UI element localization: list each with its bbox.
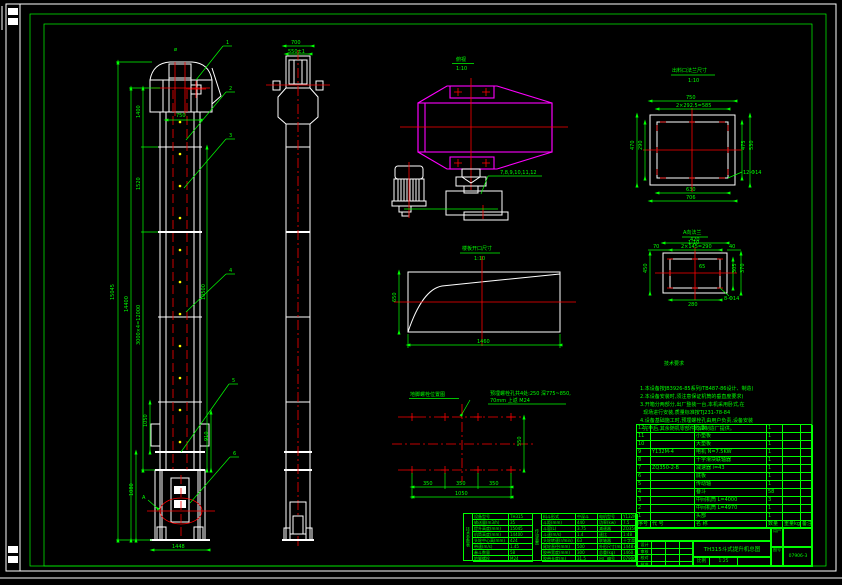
bom-row-10-cell-1 — [651, 505, 695, 513]
opening-scale: 1:10 — [474, 256, 485, 262]
bom-row-7-cell-2: 传动轴 — [695, 481, 767, 489]
bom-row-8-cell-3: 58 — [767, 489, 783, 497]
bom-row-9-cell-3: 3 — [767, 497, 783, 505]
head-detail-scale: 1:10 — [456, 66, 467, 72]
anchor-d1: 350 — [423, 481, 433, 487]
bom-row-4-cell-1 — [651, 457, 695, 465]
param-v2-7: 31.5 — [576, 556, 598, 562]
title-block: 设计审核校对批准 TH315斗式提升机总图 比例 1:25 用户 图号 0790… — [636, 527, 812, 566]
balloon-3: 3 — [229, 133, 232, 139]
revision-cell — [637, 528, 771, 541]
bom-row-11-cell-5 — [801, 513, 813, 521]
anchor-height: 550 — [517, 436, 523, 446]
bom-row-2-cell-3: 1 — [767, 441, 783, 449]
opening-view: 楼板开口尺寸 1:10 1460 650 — [392, 245, 576, 348]
flange-a-center: 65 — [699, 264, 705, 270]
bom-row-3-cell-1: Y132M-4 — [651, 449, 695, 457]
anchor-bolts — [408, 413, 515, 474]
sign-label-3: 批准 — [638, 562, 652, 568]
bom-row-0-cell-0: 12 — [637, 425, 651, 433]
bom-row-6-cell-0: 6 — [637, 473, 651, 481]
flange-a-r2: 370 — [740, 263, 746, 273]
client-label: 用户 — [771, 528, 783, 547]
bom-row-11-cell-1 — [651, 513, 695, 521]
flange-a-top: 420 — [690, 237, 700, 243]
bom-row-9-cell-5 — [801, 497, 813, 505]
dim-side-inner: 550±1 — [288, 49, 305, 55]
side-view: 700 550±1 — [266, 40, 330, 548]
dim-boot-lower: 1080 — [129, 483, 135, 496]
dim-boot-upper: 1050 — [143, 414, 149, 427]
bom-row-7-cell-5 — [801, 481, 813, 489]
bom-row-2-cell-0: 10 — [637, 441, 651, 449]
bom-row-3-cell-0: 9 — [637, 449, 651, 457]
tech-note-line-2: 2.本设备安装时,须注意保证机筒的垂直度要求) — [640, 393, 810, 401]
flange-b-leader: 12-Φ14 — [743, 170, 761, 176]
flange-a-title: A向法兰 — [683, 229, 701, 236]
bom-row-8-cell-5 — [801, 489, 813, 497]
bom-row-4-cell-4 — [783, 457, 801, 465]
param-group-2: 料斗形式中深斗斗距(mm)440斗容(L)3.75斗速(m/s)1.4头轮转速(… — [542, 514, 598, 560]
param-l2-7: 胶带长度(m) — [542, 556, 576, 562]
bom-row-5-cell-1: ZQ350-2-B — [651, 465, 695, 473]
tech-note-line-4: 现场进行安装,质量标准按TJ231-78-84 — [640, 409, 810, 417]
drawing-no-label: 图号 — [771, 547, 783, 567]
anchor-view: 地脚螺栓位置图 预埋螺栓孔共4处:250 深775~850, 70mm 上返 M… — [392, 390, 571, 499]
bom-row-3-cell-5 — [801, 449, 813, 457]
bom-row-0-cell-2: 压板 — [695, 425, 767, 433]
anchor-total: 1050 — [455, 491, 468, 497]
dim-boot-right: 910 — [204, 431, 210, 441]
drawing-no-value: 07906-3 — [783, 547, 813, 567]
tech-notes-title: 技术要求 — [640, 360, 810, 369]
param-side-label: 技术参数表 — [464, 514, 473, 560]
sign-cell-3-1 — [652, 562, 666, 568]
bom-row-11-cell-2: 头部 — [695, 513, 767, 521]
anchor-d2: 350 — [456, 481, 466, 487]
balloon-6: 6 — [233, 451, 236, 457]
bom-row-7-cell-1 — [651, 481, 695, 489]
flange-b-top: 750 — [686, 95, 696, 101]
bom-row-3-cell-4 — [783, 449, 801, 457]
bom-row-2-cell-4 — [783, 441, 801, 449]
cad-sheet: 1 2 3 4 5 6 ø A 15045 14400 1400 152 — [0, 0, 842, 585]
dim-right-run: 10500 — [201, 284, 207, 300]
anchor-title: 地脚螺栓位置图 — [410, 391, 445, 398]
flange-b-scale: 1:10 — [688, 78, 699, 84]
bom-row-5-cell-3: 1 — [767, 465, 783, 473]
sign-cell-3-2 — [666, 562, 680, 568]
balloon-1: 1 — [226, 40, 229, 46]
bucket-dots — [179, 121, 182, 444]
flange-a-r1: 305 — [732, 263, 738, 273]
bom-row-4-cell-2: 十字滑块联轴器 — [695, 457, 767, 465]
client-value — [783, 528, 813, 547]
scale-value: 1:25 — [710, 558, 738, 566]
bom-row-4-cell-3: 1 — [767, 457, 783, 465]
bom-row-10-cell-2: 中间机筒 L=4970 — [695, 505, 767, 513]
flange-b-r1: 475 — [741, 140, 747, 150]
dia-mark: ø — [174, 47, 177, 53]
anchor-note2: 70mm 上返 M24 — [490, 397, 530, 404]
bom-row-3-cell-3: 1 — [767, 449, 783, 457]
flange-b-b1: 630 — [686, 187, 696, 193]
param-table: 技术参数表 设备型号TH315输送量(m3/h)35提升高度(mm)15045机… — [463, 513, 636, 561]
bom-row-2-cell-5 — [801, 441, 813, 449]
flange-a-view: A向法兰 1:10 420 70 2×145=290 40 450 305 37… — [643, 229, 746, 308]
bom-row-6-cell-4 — [783, 473, 801, 481]
bom-table: 12压板111小垫板110大垫板19Y132M-4电机 N=7.5KW18十字滑… — [636, 424, 812, 528]
flange-a-70: 70 — [653, 244, 659, 250]
bom-row-4-cell-5 — [801, 457, 813, 465]
bom-row-6-cell-5 — [801, 473, 813, 481]
bom-row-4-cell-0: 8 — [637, 457, 651, 465]
head-detail-leader: 7,8,9,10,11,12 — [500, 170, 537, 176]
flange-a-mid: 2×145=290 — [681, 244, 712, 250]
drawing-title: TH315斗式提升机总图 — [693, 541, 771, 557]
head-detail-title: 俯视 — [456, 56, 466, 63]
front-view — [147, 62, 221, 540]
bom-row-10-cell-0: 2 — [637, 505, 651, 513]
flange-b-b2: 706 — [686, 195, 696, 201]
bom-row-8-cell-4 — [783, 489, 801, 497]
dim-mid-height: 14400 — [124, 296, 130, 312]
bom-row-11-cell-0: 1 — [637, 513, 651, 521]
flange-a-40: 40 — [729, 244, 735, 250]
sign-cell-3-3 — [680, 562, 693, 568]
tech-note-line-3: 3.开箱分两部分,出厂整装一台,本机采用卧式,在 — [640, 401, 810, 409]
bom-row-10-cell-5 — [801, 505, 813, 513]
bom-row-0-cell-1 — [651, 425, 695, 433]
bom-row-9-cell-2: 中间机筒 L=4000 — [695, 497, 767, 505]
bom-row-7-cell-4 — [783, 481, 801, 489]
bom-row-9-cell-0: 3 — [637, 497, 651, 505]
bom-row-9-cell-4 — [783, 497, 801, 505]
flange-a-bottom: 280 — [688, 302, 698, 308]
dim-second-section: 1520 — [136, 177, 142, 190]
param-l1-7: 地脚螺栓 — [473, 556, 509, 562]
param-group-3: 电机型号Y132M-4功率(kw)7.5减速器ZQ350-2-B速比1:48联轴… — [598, 514, 638, 560]
dim-sections: 3000×4=12000 — [136, 305, 142, 345]
anchor-note1: 预埋螺栓孔共4处:250 深775~850, — [490, 390, 571, 397]
bom-row-6-cell-1 — [651, 473, 695, 481]
param-group-1: 设备型号TH315输送量(m3/h)35提升高度(mm)15045机筒高度(mm… — [473, 514, 533, 560]
bom-row-8-cell-2: 畚斗 — [695, 489, 767, 497]
bom-row-10-cell-4 — [783, 505, 801, 513]
bom-row-1-cell-5 — [801, 433, 813, 441]
flange-b-title: 出料口法兰尺寸 — [672, 67, 707, 74]
bom-row-1-cell-3: 1 — [767, 433, 783, 441]
bom-row-5-cell-5 — [801, 465, 813, 473]
flange-b-view: 出料口法兰尺寸 1:10 750 2×292.5=585 470 290 475… — [630, 67, 761, 201]
bom-row-8-cell-0: 4 — [637, 489, 651, 497]
anchor-d3: 350 — [489, 481, 499, 487]
bom-row-10-cell-3: 1 — [767, 505, 783, 513]
bom-row-6-cell-2: 底板 — [695, 473, 767, 481]
bom-row-9-cell-1 — [651, 497, 695, 505]
flange-b-l1: 470 — [630, 140, 636, 150]
scale-row: 比例 1:25 — [693, 557, 771, 567]
bom-row-2-cell-2: 大垫板 — [695, 441, 767, 449]
bom-row-2-cell-1 — [651, 441, 695, 449]
balloon-5: 5 — [232, 378, 235, 384]
param-side-label-2: 传动装置 — [533, 514, 542, 560]
flange-b-r2: 530 — [749, 140, 755, 150]
tech-note-line-1: 1.本设备按JB3926-85系列/TB487-86设计、制造) — [640, 385, 810, 393]
opening-title: 楼板开口尺寸 — [462, 245, 492, 252]
bom-row-5-cell-0: 7 — [637, 465, 651, 473]
flange-a-left: 450 — [643, 263, 649, 273]
flange-b-top2: 2×292.5=585 — [676, 103, 711, 109]
head-detail-view: 俯视 1:10 — [392, 56, 568, 220]
bom-row-1-cell-4 — [783, 433, 801, 441]
bom-row-7-cell-3: 1 — [767, 481, 783, 489]
dim-total-height: 15045 — [110, 284, 116, 300]
bom-row-5-cell-4 — [783, 465, 801, 473]
flange-b-l2: 290 — [638, 140, 644, 150]
bom-row-1-cell-2: 小垫板 — [695, 433, 767, 441]
param-l3-7: 出厂编号 — [598, 556, 622, 562]
bom-row-1-cell-1 — [651, 433, 695, 441]
dim-side-width: 700 — [291, 40, 301, 46]
bom-row-7-cell-0: 5 — [637, 481, 651, 489]
flange-a-leader: 8-Φ14 — [724, 296, 739, 302]
dim-top-section: 1400 — [136, 105, 142, 118]
bom-row-1-cell-0: 11 — [637, 433, 651, 441]
opening-width: 1460 — [477, 339, 490, 345]
bom-row-0-cell-4 — [783, 425, 801, 433]
bom-row-0-cell-3: 1 — [767, 425, 783, 433]
dim-base-width: 1448 — [172, 544, 185, 550]
motor — [392, 162, 426, 218]
bom-row-0-cell-5 — [801, 425, 813, 433]
balloon-4: 4 — [229, 268, 232, 274]
scale-extra — [738, 558, 771, 566]
scale-label: 比例 — [694, 558, 710, 566]
opening-height: 650 — [392, 292, 398, 302]
bom-row-3-cell-2: 电机 N=7.5KW — [695, 449, 767, 457]
bom-row-5-cell-2: 减速器 i=43 — [695, 465, 767, 473]
bom-row-6-cell-3: 1 — [767, 473, 783, 481]
bom-row-8-cell-1 — [651, 489, 695, 497]
balloon-2: 2 — [229, 86, 232, 92]
view-a-arrow: A — [142, 495, 146, 501]
dim-head-width: 750 — [176, 113, 186, 119]
bom-row-11-cell-4 — [783, 513, 801, 521]
bom-row-11-cell-3: 1 — [767, 513, 783, 521]
param-v1-7: M24 — [509, 556, 533, 562]
signature-grid: 设计审核校对批准 — [637, 541, 693, 567]
